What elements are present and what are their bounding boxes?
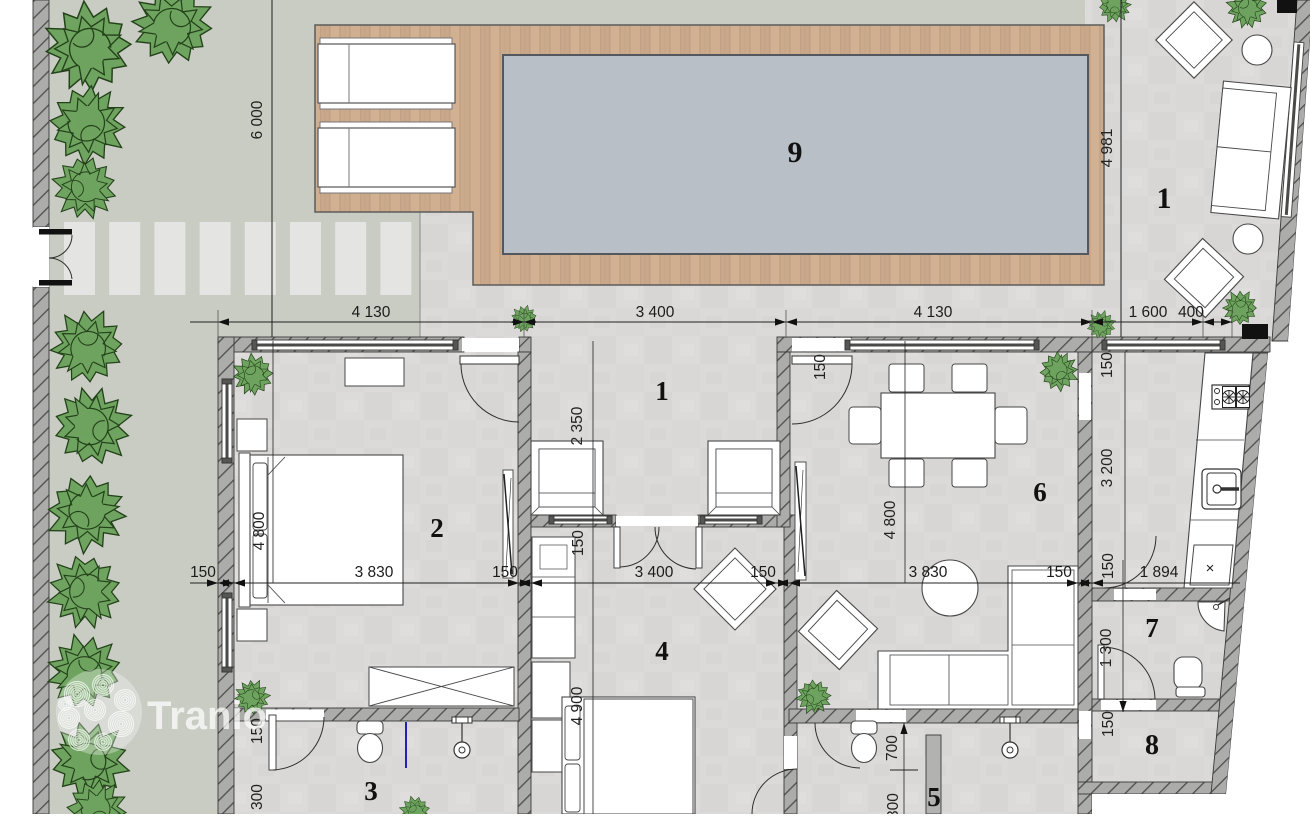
svg-text:Tranio: Tranio	[147, 694, 267, 738]
svg-text:3 830: 3 830	[355, 564, 394, 581]
svg-text:4: 4	[655, 636, 669, 666]
svg-text:150: 150	[570, 530, 587, 556]
svg-text:4 900: 4 900	[569, 686, 586, 725]
svg-text:1: 1	[655, 376, 669, 406]
svg-text:300: 300	[249, 784, 266, 810]
svg-text:150: 150	[190, 564, 216, 581]
svg-text:3 400: 3 400	[636, 304, 675, 321]
svg-text:5: 5	[927, 782, 941, 812]
svg-text:1 300: 1 300	[1098, 628, 1115, 667]
svg-text:2: 2	[430, 513, 444, 543]
svg-text:400: 400	[1178, 304, 1204, 321]
svg-text:150: 150	[750, 564, 776, 581]
svg-text:700: 700	[884, 735, 901, 761]
svg-text:300: 300	[885, 793, 902, 814]
svg-text:3 400: 3 400	[635, 564, 674, 581]
svg-text:6: 6	[1033, 477, 1047, 507]
svg-text:9: 9	[788, 136, 803, 169]
svg-text:3: 3	[364, 776, 378, 806]
svg-text:150: 150	[1100, 553, 1117, 579]
svg-text:150: 150	[1046, 564, 1072, 581]
svg-text:×: ×	[1206, 560, 1215, 577]
svg-text:1 894: 1 894	[1140, 564, 1179, 581]
svg-text:150: 150	[1099, 352, 1116, 378]
svg-text:6 000: 6 000	[249, 100, 266, 139]
svg-text:150: 150	[812, 354, 829, 380]
svg-text:8: 8	[1145, 730, 1159, 761]
svg-text:7: 7	[1145, 613, 1159, 643]
svg-text:2 350: 2 350	[569, 406, 586, 445]
svg-text:4 130: 4 130	[914, 304, 953, 321]
svg-text:4 800: 4 800	[882, 500, 899, 539]
svg-text:4 800: 4 800	[251, 511, 268, 550]
svg-text:4 130: 4 130	[352, 304, 391, 321]
svg-text:3 200: 3 200	[1099, 448, 1116, 487]
svg-text:1: 1	[1157, 182, 1172, 215]
svg-text:150: 150	[492, 564, 518, 581]
svg-text:4 981: 4 981	[1099, 129, 1116, 168]
svg-text:3 830: 3 830	[909, 564, 948, 581]
svg-text:150: 150	[1100, 711, 1117, 737]
svg-text:1 600: 1 600	[1129, 304, 1168, 321]
